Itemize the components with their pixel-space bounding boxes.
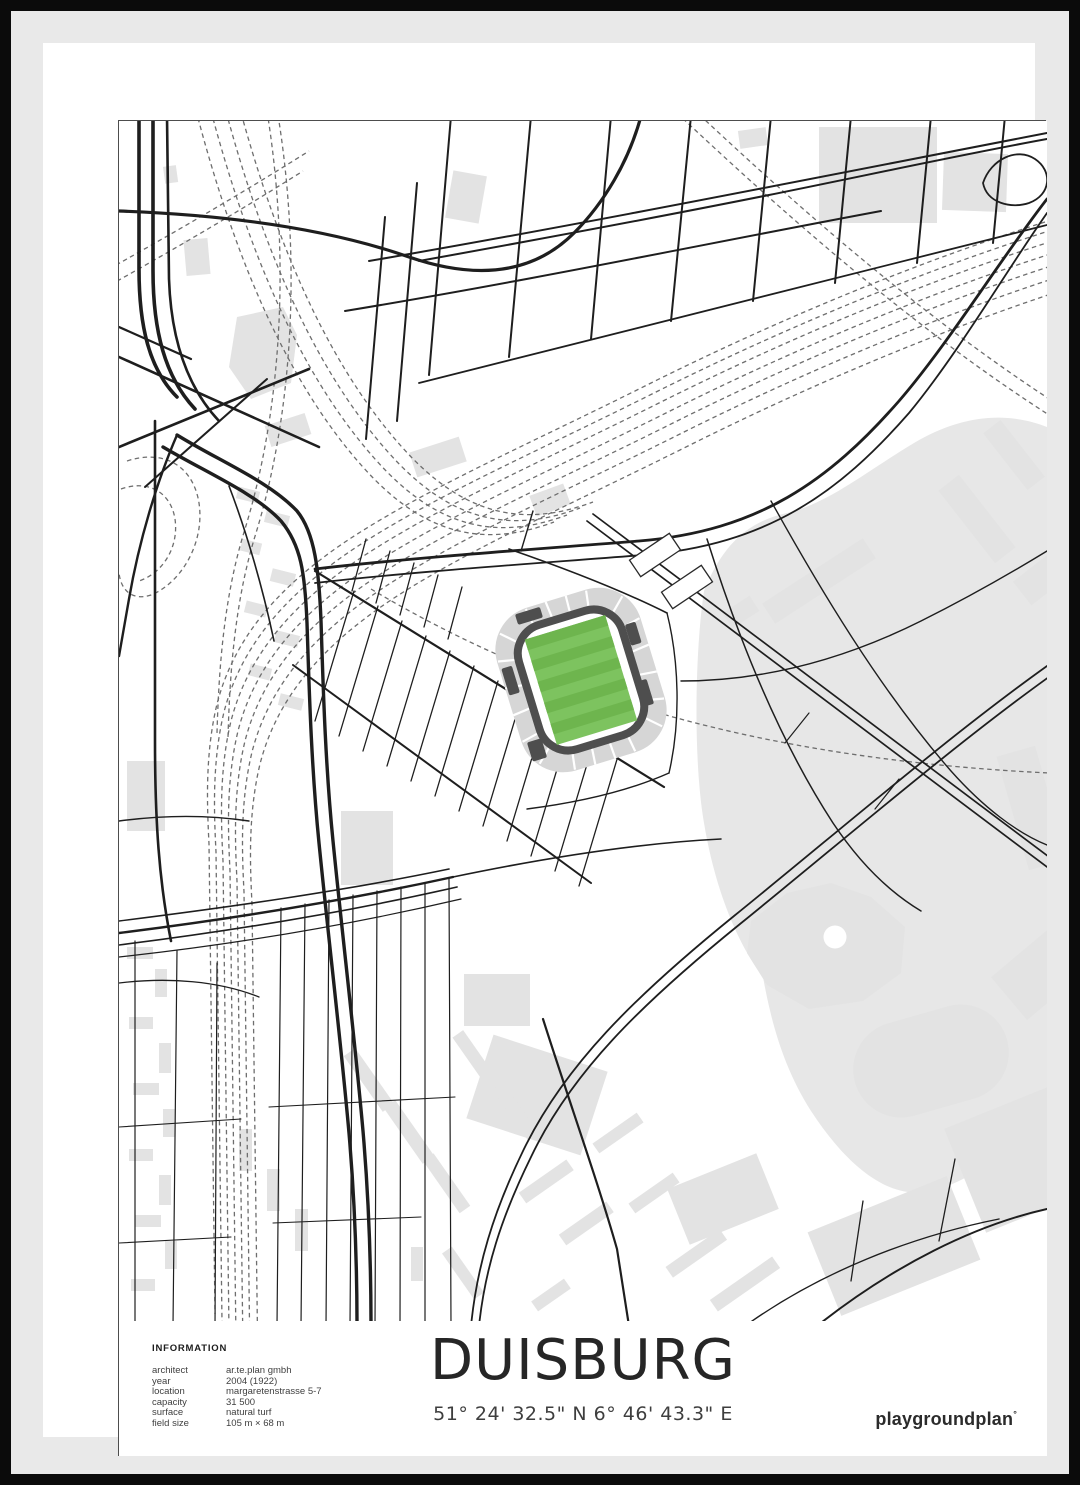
map-canvas — [119, 121, 1047, 1321]
brand-logo: playgroundplan° — [875, 1409, 1017, 1430]
city-map — [119, 121, 1047, 1321]
outlined-buildings — [630, 533, 713, 608]
brand-name: playgroundplan — [875, 1409, 1013, 1429]
poster-paper: INFORMATION architectar.te.plan gmbh yea… — [43, 43, 1035, 1437]
stadium — [484, 577, 677, 783]
poster-content: INFORMATION architectar.te.plan gmbh yea… — [118, 120, 1046, 1456]
brand-mark: ° — [1013, 1409, 1017, 1419]
poster-frame: INFORMATION architectar.te.plan gmbh yea… — [0, 0, 1080, 1485]
poster-footer: INFORMATION architectar.te.plan gmbh yea… — [119, 1321, 1047, 1456]
poster-title: DUISBURG — [119, 1331, 1047, 1391]
